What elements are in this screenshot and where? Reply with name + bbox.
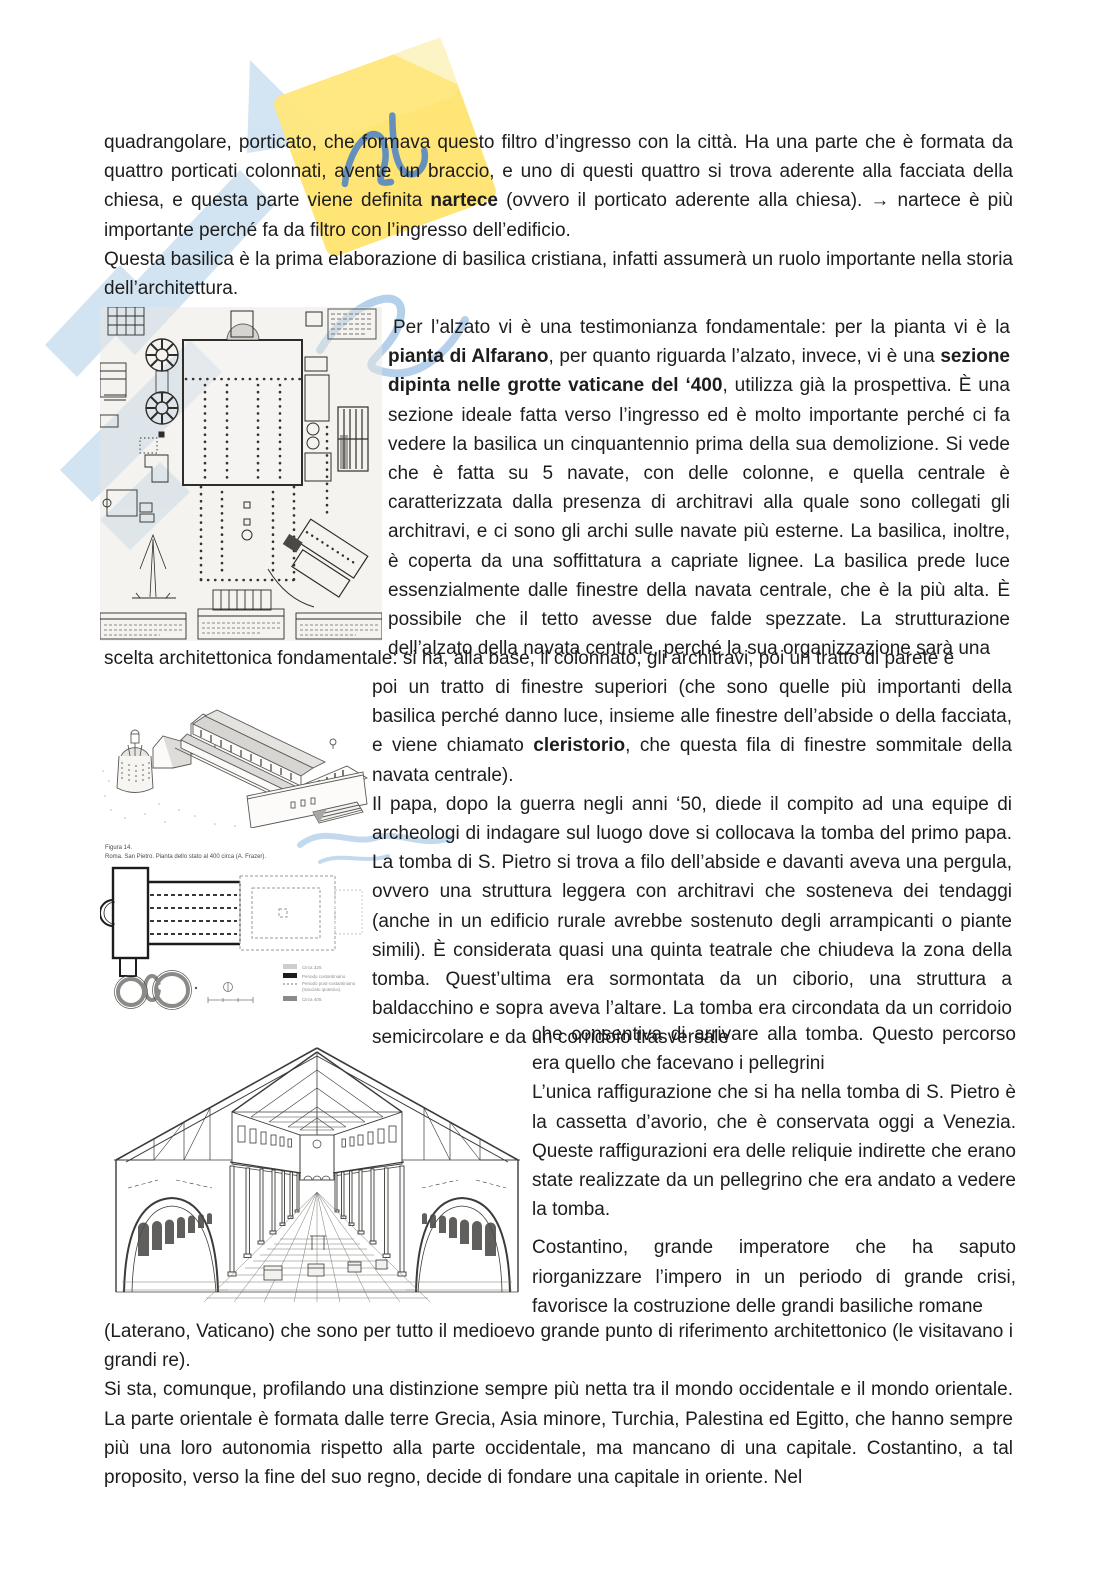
svg-text:Circa 320.: Circa 320. <box>302 965 323 970</box>
scelta-architettonica-line: scelta architettonica fondamentale: si h… <box>104 644 1013 673</box>
svg-text:Circa 400.: Circa 400. <box>302 997 323 1002</box>
paragraph-basilica-cristiana: Questa basilica è la prima elaborazione … <box>104 245 1013 303</box>
paragraph-costantino: Costantino, grande imperatore che ha sap… <box>532 1233 1016 1321</box>
basilica-axonometric-figure <box>95 676 372 828</box>
p3-run: , utilizza già la prospettiva. È una sez… <box>388 375 1010 659</box>
p5-bold-cleristorio: cleristorio <box>533 735 625 756</box>
basilica-interior-perspective-figure <box>114 1040 520 1302</box>
p3-run: Per l’alzato vi è una testimonianza fond… <box>393 317 1010 338</box>
svg-text:Periodo costantiniano.: Periodo costantiniano. <box>302 974 347 979</box>
paragraph-cleristorio: poi un tratto di finestre superiori (che… <box>372 673 1012 790</box>
paragraph-oriente-occidente: Si sta, comunque, profilando una distinz… <box>104 1375 1013 1492</box>
p3-run: , per quanto riguarda l’alzato, invece, … <box>548 346 940 367</box>
svg-text:Periodo post-costantiniano: Periodo post-costantiniano <box>302 981 356 986</box>
pellegrini-costantino-paragraphs: che consentiva di arrivare alla tomba. Q… <box>532 1020 1016 1321</box>
figure-caption-line1: Figura 14. <box>105 845 132 851</box>
p1-bold-nartece: nartece <box>430 190 498 211</box>
closing-paragraphs: (Laterano, Vaticano) che sono per tutto … <box>104 1317 1013 1492</box>
svg-text:(tracciato ipotetico).: (tracciato ipotetico). <box>302 987 341 992</box>
alzato-paragraph: Per l’alzato vi è una testimonianza fond… <box>388 313 1010 663</box>
document-page: Figura 14. Roma. San Pietro. Pianta dell… <box>0 0 1116 1579</box>
paragraph-percorso: che consentiva di arrivare alla tomba. Q… <box>532 1020 1016 1078</box>
cleristorio-and-papa-paragraphs: poi un tratto di finestre superiori (che… <box>372 673 1012 1053</box>
figure-caption-line2: Roma. San Pietro. Pianta dello stato al … <box>105 854 266 860</box>
floor-tiles <box>122 1192 512 1302</box>
paragraph-nartece: quadrangolare, porticato, che formava qu… <box>104 128 1013 245</box>
intro-paragraphs: quadrangolare, porticato, che formava qu… <box>104 128 1013 303</box>
paragraph-laterano: (Laterano, Vaticano) che sono per tutto … <box>104 1317 1013 1375</box>
paragraph-cassetta-avorio: L’unica raffigurazione che si ha nella t… <box>532 1078 1016 1224</box>
altar-pedestals <box>264 1236 387 1280</box>
figure-legend: Circa 320. Periodo costantiniano. Period… <box>283 964 356 1002</box>
figura14-plan-figure: Figura 14. Roma. San Pietro. Pianta dell… <box>100 838 382 1030</box>
alfarano-plan-figure <box>100 307 382 641</box>
paragraph-tomba: Il papa, dopo la guerra negli anni ‘50, … <box>372 790 1012 1053</box>
p3-bold-alfarano: pianta di Alfarano <box>388 346 548 367</box>
